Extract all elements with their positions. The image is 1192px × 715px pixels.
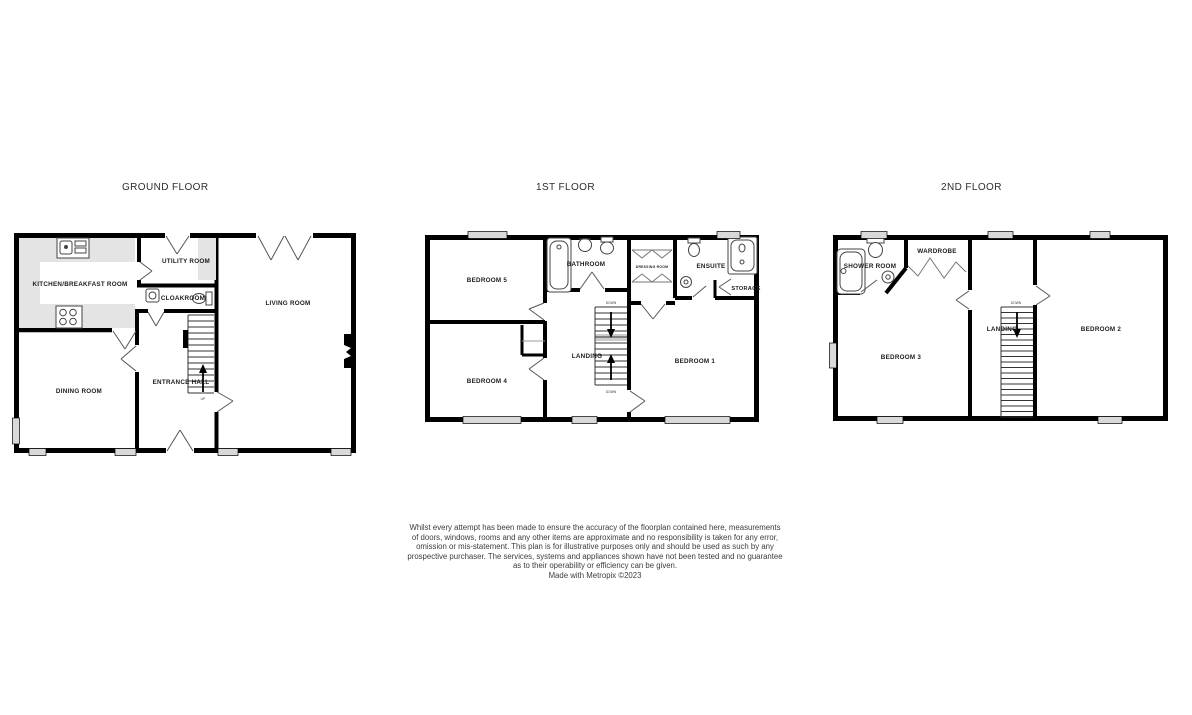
room-label-living: LIVING ROOM [265, 300, 310, 307]
room-label-bathroom: BATHROOM [567, 261, 606, 268]
hob-icon [56, 306, 82, 328]
bathroom-toilet-icon [601, 237, 614, 254]
first-floor-plan: BEDROOM 5 BATHROOM DRESSING ROOM ENSUITE… [420, 175, 780, 475]
room-label-entrance-hall: ENTRANCE HALL [153, 379, 210, 386]
disclaimer-line: as to their operability or efficiency ca… [347, 561, 843, 571]
second-stairs [1001, 307, 1033, 417]
room-label-wardrobe: WARDROBE [917, 248, 956, 255]
room-label-bedroom3: BEDROOM 3 [881, 354, 922, 361]
stairs-down-label: DOWN [606, 301, 617, 305]
room-label-utility: UTILITY ROOM [162, 258, 210, 265]
kitchen-sink-icon [57, 238, 89, 258]
bathroom-sink-icon [579, 239, 592, 252]
disclaimer-text: Whilst every attempt has been made to en… [347, 523, 843, 581]
floorplan-page: GROUND FLOOR 1ST FLOOR 2ND FLOOR [0, 0, 1192, 715]
stairs-up-label: UP [201, 397, 206, 401]
ensuite-toilet-icon [688, 238, 700, 257]
metropix-credit: Made with Metropix ©2023 [347, 571, 843, 581]
disclaimer-line: omission or mis-statement. This plan is … [347, 542, 843, 552]
room-label-landing: LANDING [572, 353, 602, 360]
ground-floor-plan: KITCHEN/BREAKFAST ROOM UTILITY ROOM CLOA… [0, 175, 380, 475]
room-label-kitchen: KITCHEN/BREAKFAST ROOM [32, 281, 127, 288]
ensuite-sink-icon [681, 277, 692, 288]
room-label-shower-room: SHOWER ROOM [844, 263, 896, 270]
room-label-bedroom1: BEDROOM 1 [675, 358, 716, 365]
room-label-landing-2: LANDING [987, 326, 1017, 333]
shower-cubicle-icon [837, 249, 865, 294]
second-sink-icon [882, 271, 894, 283]
second-toilet-icon [867, 238, 884, 258]
room-label-bedroom5: BEDROOM 5 [467, 277, 508, 284]
second-floor-plan: SHOWER ROOM WARDROBE BEDROOM 3 LANDING B… [820, 175, 1192, 475]
disclaimer-line: of doors, windows, rooms and any other i… [347, 533, 843, 543]
room-label-ensuite: ENSUITE [696, 263, 725, 270]
disclaimer-line: prospective purchaser. The services, sys… [347, 552, 843, 562]
stairs-down-label-2: DOWN [606, 390, 617, 394]
cloakroom-sink-icon [146, 289, 159, 302]
disclaimer-line: Whilst every attempt has been made to en… [347, 523, 843, 533]
room-label-bedroom2: BEDROOM 2 [1081, 326, 1122, 333]
room-label-dining: DINING ROOM [56, 388, 102, 395]
room-label-cloakroom: CLOAKROOM [161, 295, 205, 302]
stairs-down-label: DOWN [1011, 301, 1022, 305]
room-label-bedroom4: BEDROOM 4 [467, 378, 508, 385]
room-label-dressing: DRESSING ROOM [636, 265, 668, 269]
room-label-storage: STORAGE [731, 286, 760, 292]
ensuite-shower-icon [728, 237, 757, 274]
